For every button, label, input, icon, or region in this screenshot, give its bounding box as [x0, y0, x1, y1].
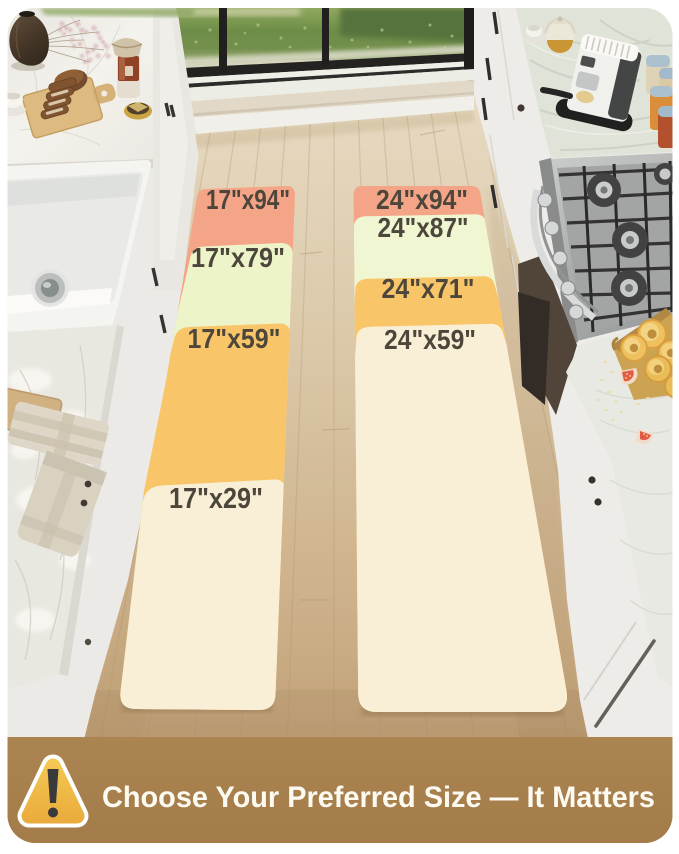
svg-text:Choose Your Preferred Size — I: Choose Your Preferred Size — It Matters [102, 781, 655, 814]
